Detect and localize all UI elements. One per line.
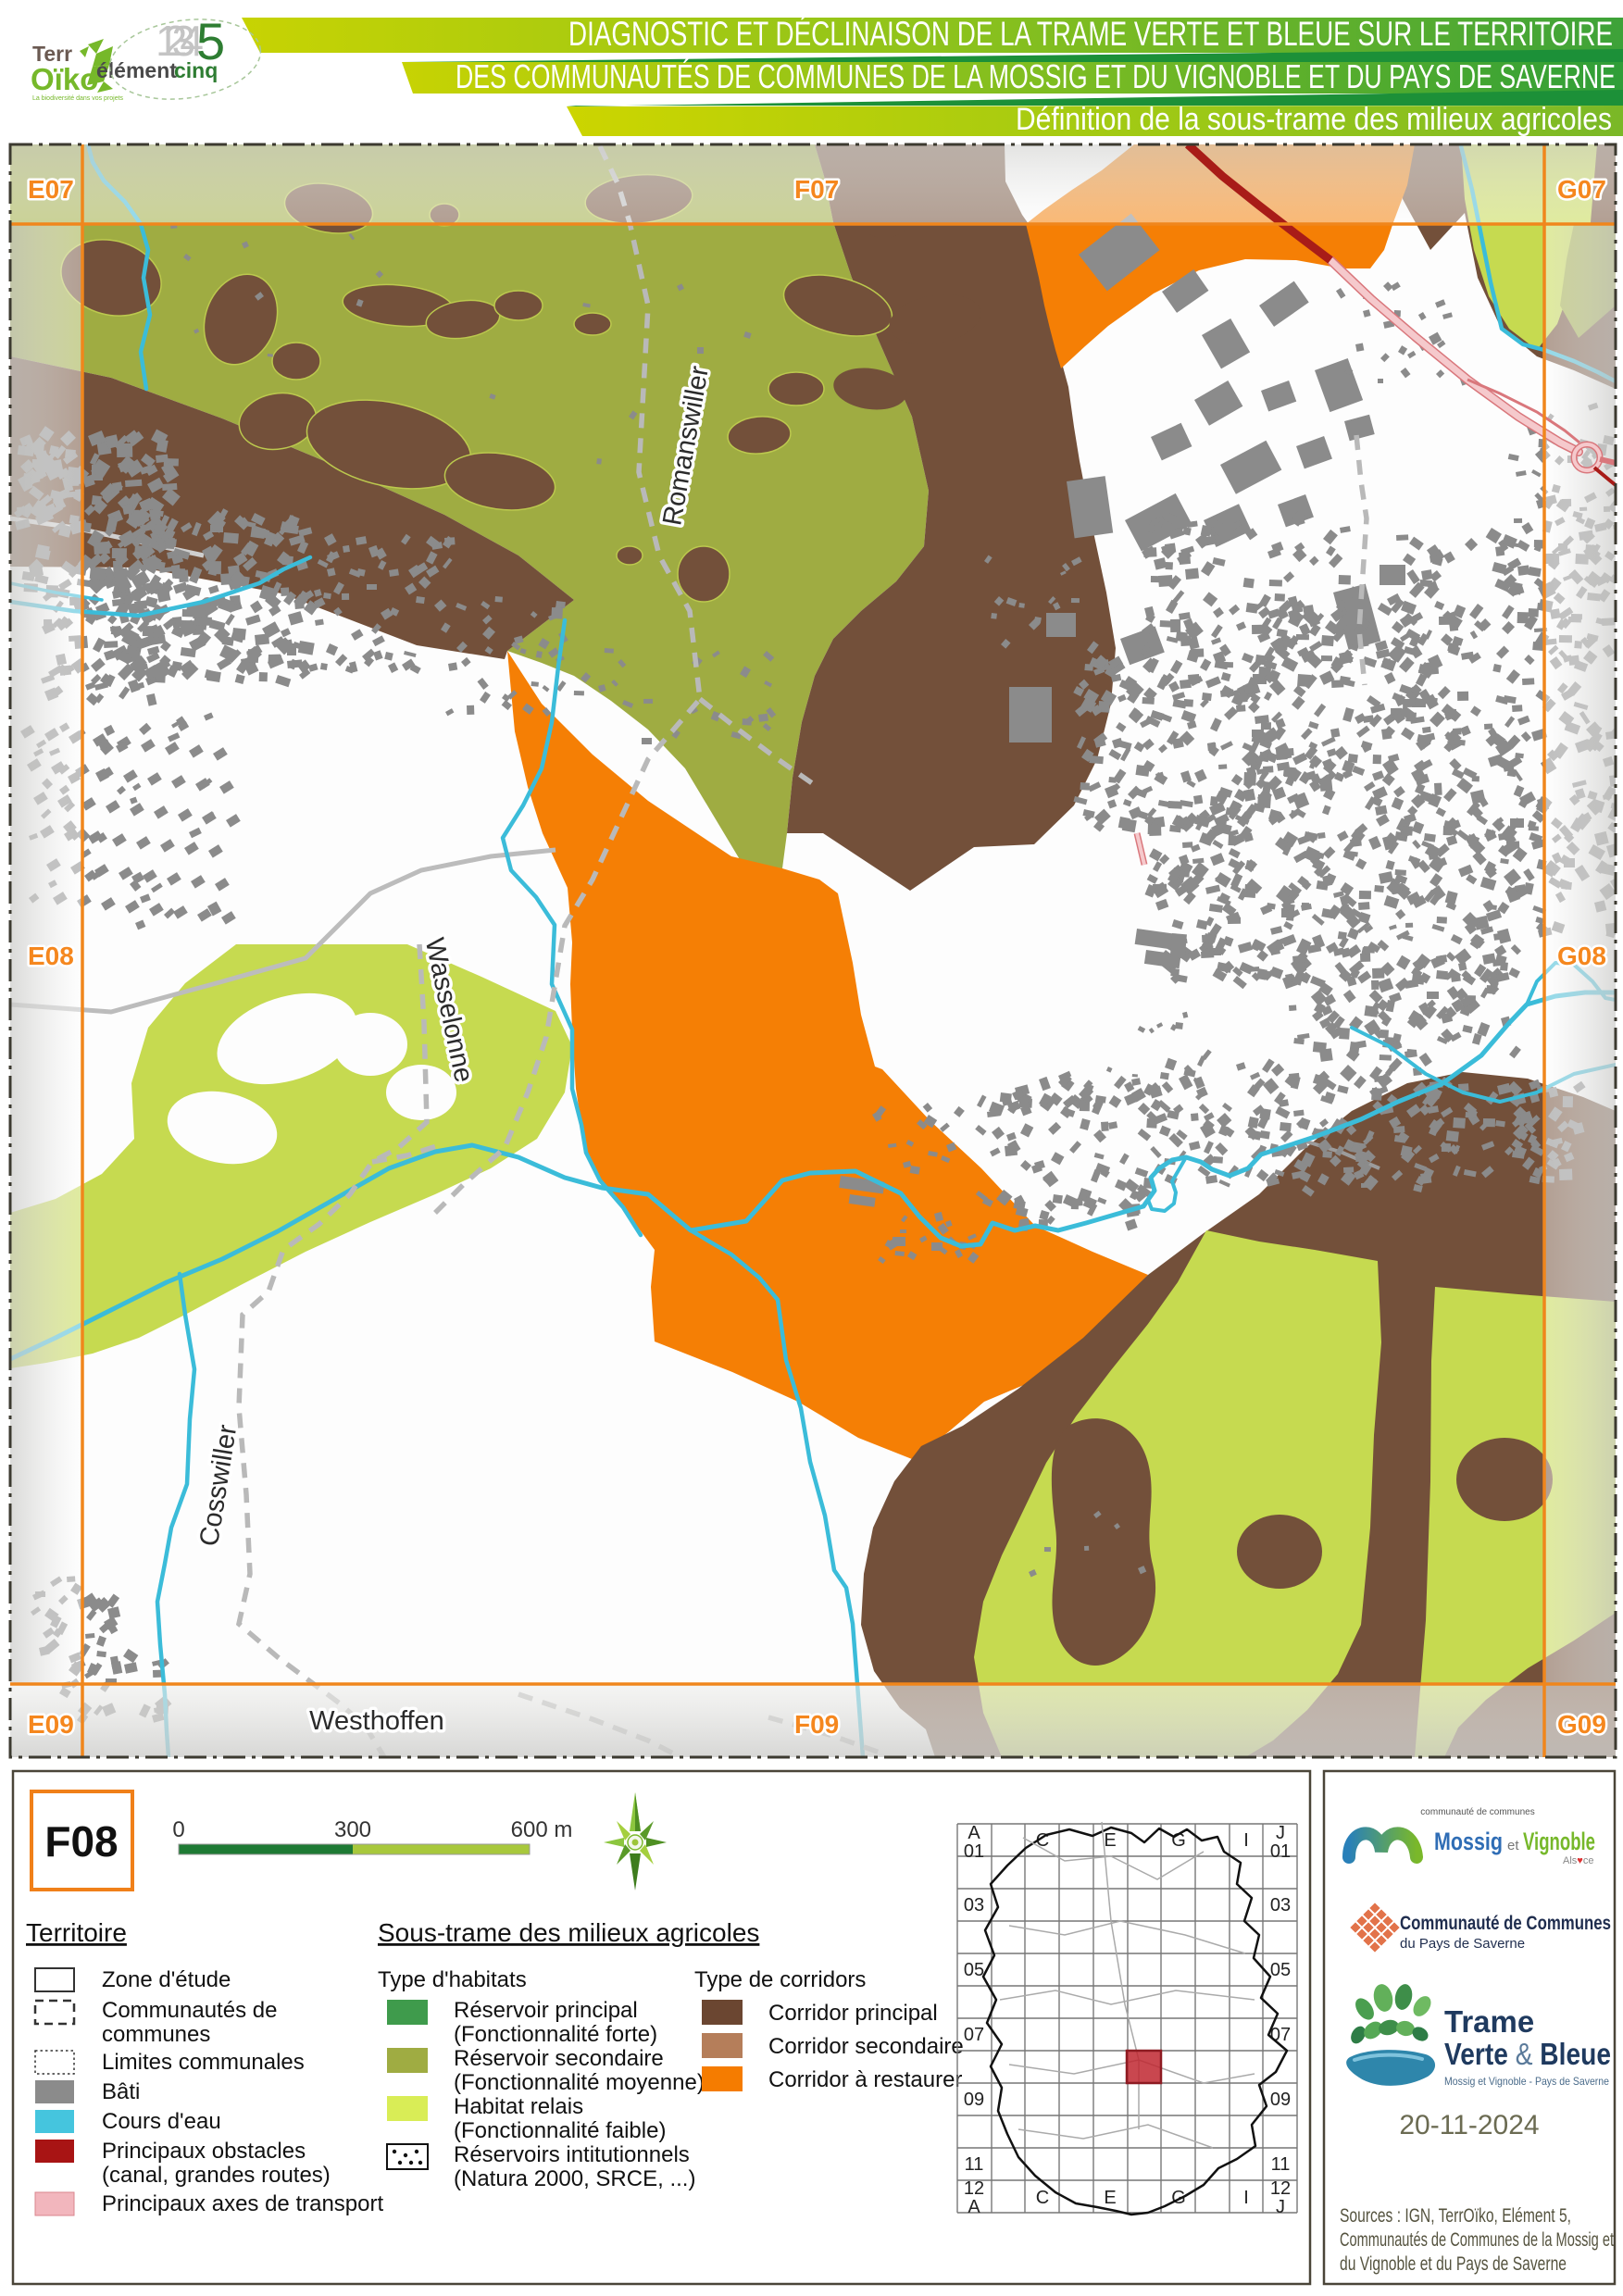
svg-text:12: 12	[1270, 2178, 1291, 2199]
svg-text:03: 03	[964, 1895, 984, 1915]
svg-text:J: J	[1276, 1823, 1285, 1843]
svg-text:Oïko: Oïko	[31, 62, 98, 96]
svg-text:20-11-2024: 20-11-2024	[1399, 2110, 1539, 2140]
svg-text:Sous-trame des milieux agricol: Sous-trame des milieux agricoles	[378, 1918, 759, 1947]
svg-text:élément: élément	[96, 58, 177, 82]
svg-text:A: A	[968, 1823, 980, 1843]
svg-text:E08: E08	[28, 942, 74, 970]
svg-text:Bâti: Bâti	[102, 2079, 140, 2104]
svg-text:F09: F09	[794, 1710, 839, 1739]
svg-text:E07: E07	[28, 175, 74, 204]
svg-text:11: 11	[1271, 2154, 1291, 2175]
svg-text:F07: F07	[794, 175, 839, 204]
svg-text:Corridor principal: Corridor principal	[768, 2001, 938, 2026]
svg-text:(Natura 2000, SRCE, ...): (Natura 2000, SRCE, ...)	[454, 2166, 695, 2191]
svg-text:05: 05	[964, 1960, 984, 1980]
svg-text:communauté de communes: communauté de communes	[1420, 1807, 1534, 1817]
svg-text:et: et	[1507, 1838, 1519, 1853]
svg-text:Cours d'eau: Cours d'eau	[102, 2109, 221, 2134]
svg-text:G09: G09	[1557, 1710, 1606, 1739]
svg-text:Westhoffen: Westhoffen	[309, 1706, 444, 1736]
svg-text:F08: F08	[44, 1817, 118, 1865]
svg-text:cinq: cinq	[174, 58, 218, 82]
svg-text:Zone d'étude: Zone d'étude	[102, 1967, 231, 1992]
svg-text:Limites communales: Limites communales	[102, 2050, 305, 2075]
svg-text:E: E	[1104, 1830, 1116, 1851]
svg-text:A: A	[968, 2197, 980, 2217]
svg-text:DIAGNOSTIC ET DÉCLINAISON DE L: DIAGNOSTIC ET DÉCLINAISON DE LA TRAME VE…	[568, 15, 1613, 53]
svg-text:Type d'habitats: Type d'habitats	[378, 1967, 527, 1992]
svg-text:Sources : IGN, TerrOïko, Eléme: Sources : IGN, TerrOïko, Elément 5,	[1340, 2205, 1571, 2227]
svg-text:communes: communes	[102, 2022, 210, 2047]
svg-text:DES COMMUNAUTÉS DE COMMUNES DE: DES COMMUNAUTÉS DE COMMUNES DE LA MOSSIG…	[456, 57, 1616, 95]
svg-text:Verte & Bleue: Verte & Bleue	[1444, 2037, 1611, 2071]
svg-text:Corridor à restaurer: Corridor à restaurer	[768, 2067, 962, 2092]
svg-text:Trame: Trame	[1444, 2004, 1534, 2039]
svg-text:Vignoble: Vignoble	[1523, 1828, 1595, 1855]
svg-text:Réservoirs intitutionnels: Réservoirs intitutionnels	[454, 2142, 690, 2167]
svg-text:G08: G08	[1557, 942, 1606, 970]
svg-text:09: 09	[964, 2090, 984, 2110]
svg-text:du Vignoble et du Pays de Save: du Vignoble et du Pays de Saverne	[1340, 2253, 1567, 2275]
svg-text:05: 05	[1270, 1960, 1291, 1980]
svg-text:C: C	[1036, 2188, 1049, 2208]
svg-text:300: 300	[334, 1817, 371, 1842]
svg-text:Territoire: Territoire	[26, 1918, 127, 1947]
svg-text:(Fonctionnalité forte): (Fonctionnalité forte)	[454, 2022, 657, 2047]
svg-text:Définition de la sous-trame de: Définition de la sous-trame des milieux …	[1016, 102, 1612, 137]
svg-text:07: 07	[1270, 2025, 1291, 2045]
svg-text:0: 0	[172, 1817, 184, 1842]
svg-text:Type de corridors: Type de corridors	[694, 1967, 866, 1992]
svg-text:Principaux obstacles: Principaux obstacles	[102, 2139, 306, 2164]
svg-text:(canal, grandes routes): (canal, grandes routes)	[102, 2163, 331, 2188]
svg-text:03: 03	[1270, 1895, 1291, 1915]
svg-text:Mossig et Vignoble - Pays de S: Mossig et Vignoble - Pays de Saverne	[1444, 2075, 1609, 2088]
svg-text:G07: G07	[1557, 175, 1606, 204]
svg-text:07: 07	[964, 2025, 984, 2045]
svg-text:Communautés de Communes de la: Communautés de Communes de la Mossig et	[1340, 2229, 1614, 2251]
svg-text:I: I	[1243, 1830, 1249, 1851]
svg-text:E09: E09	[28, 1710, 74, 1739]
svg-text:La biodiversité dans vos proje: La biodiversité dans vos projets	[32, 95, 124, 102]
svg-text:Als♥ce: Als♥ce	[1563, 1855, 1593, 1866]
svg-text:(Fonctionnalité faible): (Fonctionnalité faible)	[454, 2118, 666, 2143]
svg-text:du Pays de Saverne: du Pays de Saverne	[1400, 1936, 1525, 1952]
svg-text:Corridor secondaire: Corridor secondaire	[768, 2034, 964, 2059]
svg-text:Réservoir principal: Réservoir principal	[454, 1998, 638, 2023]
svg-text:Réservoir secondaire: Réservoir secondaire	[454, 2046, 664, 2071]
svg-text:(Fonctionnalité moyenne): (Fonctionnalité moyenne)	[454, 2070, 705, 2095]
svg-text:600 m: 600 m	[511, 1817, 573, 1842]
svg-text:Principaux axes de transport: Principaux axes de transport	[102, 2191, 383, 2216]
svg-text:11: 11	[965, 2154, 984, 2175]
svg-text:Communauté de Communes: Communauté de Communes	[1400, 1913, 1611, 1934]
svg-text:Mossig: Mossig	[1434, 1828, 1503, 1855]
svg-text:09: 09	[1270, 2090, 1291, 2110]
svg-text:01: 01	[964, 1841, 984, 1862]
svg-text:01: 01	[1270, 1841, 1291, 1862]
svg-text:E: E	[1104, 2188, 1116, 2208]
svg-text:I: I	[1243, 2188, 1249, 2208]
svg-text:Communautés de: Communautés de	[102, 1998, 277, 2023]
svg-text:Habitat relais: Habitat relais	[454, 2094, 583, 2119]
svg-text:J: J	[1276, 2197, 1285, 2217]
svg-text:12: 12	[964, 2178, 984, 2199]
